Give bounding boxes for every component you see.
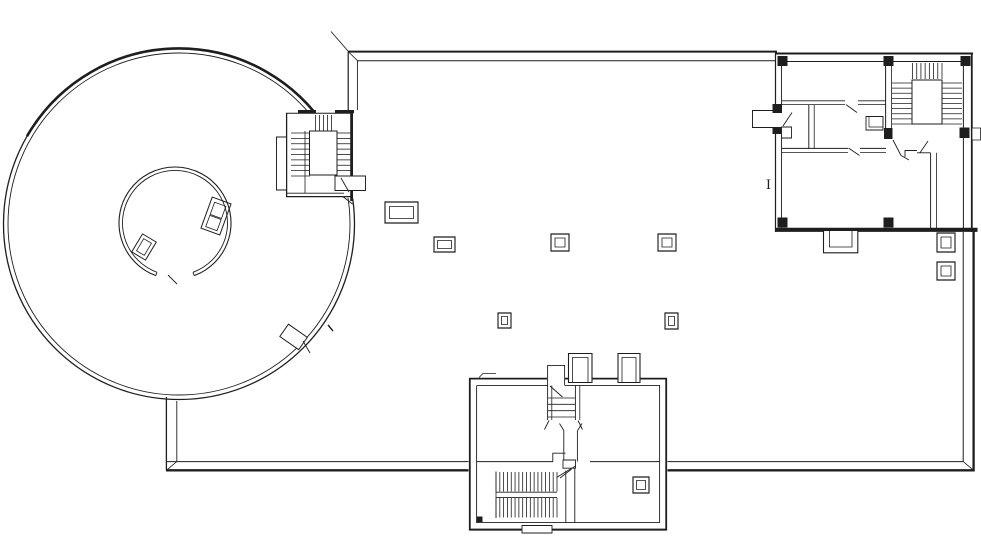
ne-duct-box <box>866 117 883 131</box>
hall-top-wall <box>348 52 782 112</box>
south-wall-tick <box>479 374 496 378</box>
column <box>434 237 455 252</box>
south-wall-notch <box>522 526 552 534</box>
south-wing <box>469 354 668 534</box>
ne-column <box>884 56 894 66</box>
column <box>937 233 955 252</box>
ne-column <box>778 218 788 228</box>
drum-furniture-b <box>132 234 157 260</box>
floor-plan-canvas: I <box>0 0 981 552</box>
west-core-lobby <box>335 176 366 191</box>
hall-southwest-wall <box>166 397 176 470</box>
rotunda-door <box>280 324 333 353</box>
column <box>633 477 649 493</box>
west-core-side-shaft <box>277 137 287 190</box>
hall-right-wall <box>963 230 973 472</box>
column <box>551 234 569 251</box>
west-stair-core <box>277 111 366 204</box>
ne-exterior-notch <box>972 128 981 140</box>
drum-door-tick <box>168 275 177 284</box>
column <box>385 202 418 223</box>
west-stair-newel <box>310 131 338 175</box>
floor-plan-page: I <box>0 0 981 552</box>
grid-label: I <box>766 178 771 193</box>
ne-entry-vestibule <box>753 111 778 128</box>
column <box>498 313 511 328</box>
ne-column <box>884 218 894 228</box>
corner-leader-line <box>331 32 348 52</box>
drum-furniture-a <box>201 197 231 235</box>
column <box>658 234 676 251</box>
ne-column <box>960 128 970 139</box>
ne-stair-newel <box>912 80 942 124</box>
ne-column <box>778 56 788 66</box>
door-jamb-tick <box>328 325 333 331</box>
column <box>665 313 678 329</box>
rotunda-inner-drum <box>119 167 231 284</box>
ne-column <box>961 56 971 66</box>
column <box>937 262 955 280</box>
northeast-wing <box>753 53 981 232</box>
ne-underwall-shaft <box>824 231 858 253</box>
